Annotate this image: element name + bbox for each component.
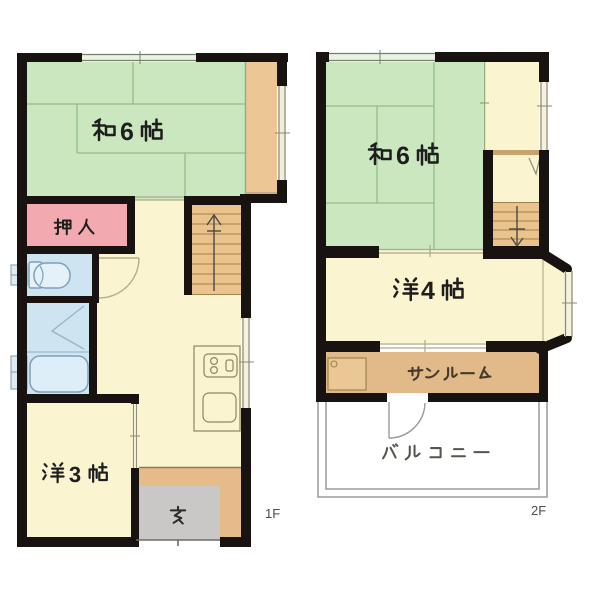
svg-text:4: 4 (421, 277, 435, 305)
svg-text:3: 3 (69, 462, 81, 487)
svg-text:1F: 1F (265, 506, 280, 521)
svg-text:6: 6 (120, 118, 134, 146)
svg-text:2F: 2F (531, 503, 546, 518)
svg-text:6: 6 (396, 142, 410, 170)
